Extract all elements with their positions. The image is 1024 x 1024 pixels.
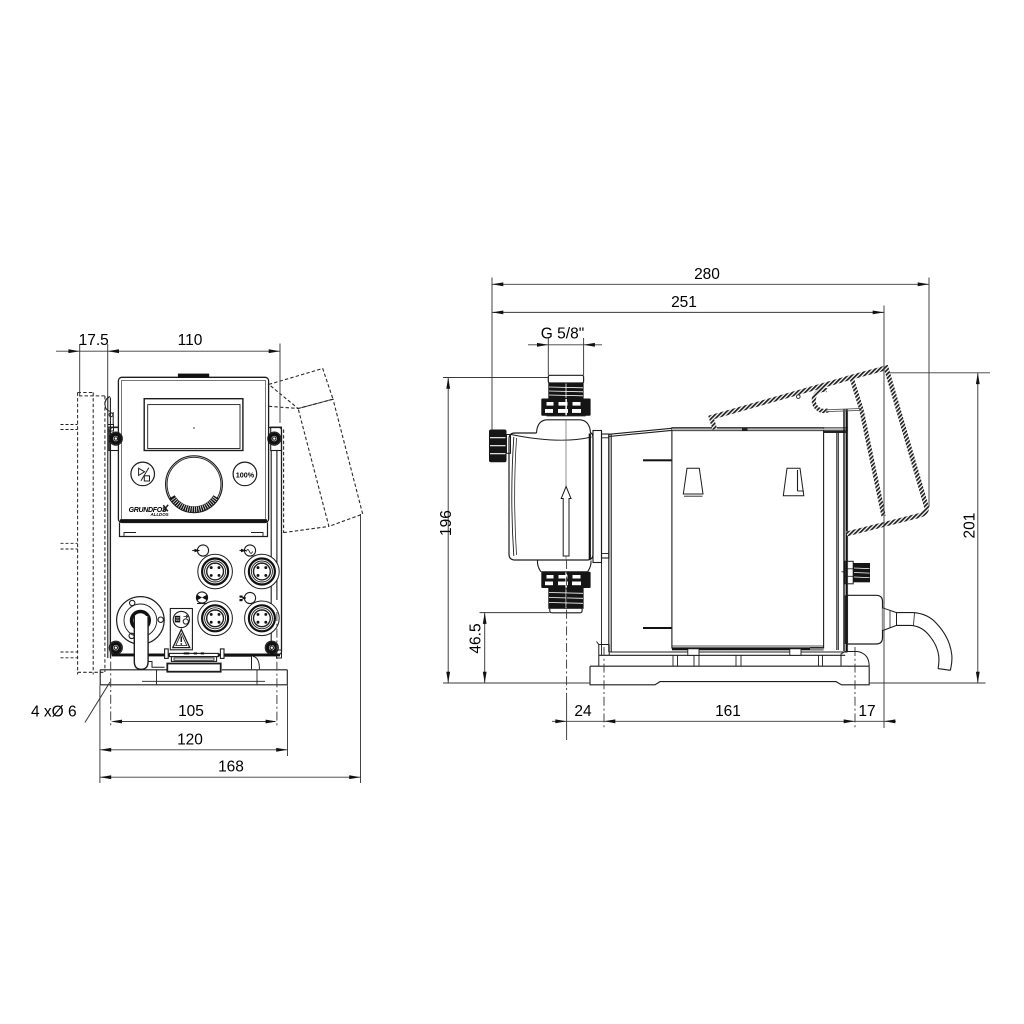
svg-text:24: 24 bbox=[574, 703, 592, 720]
svg-text:17.5: 17.5 bbox=[79, 332, 109, 349]
svg-text:105: 105 bbox=[178, 703, 204, 720]
svg-text:100%: 100% bbox=[236, 470, 255, 479]
svg-text:120: 120 bbox=[177, 732, 203, 749]
svg-text:168: 168 bbox=[218, 759, 244, 776]
svg-text:G 5/8": G 5/8" bbox=[541, 326, 584, 343]
svg-text:280: 280 bbox=[694, 266, 720, 283]
svg-text:4 xØ 6: 4 xØ 6 bbox=[31, 704, 77, 721]
svg-text:251: 251 bbox=[671, 294, 697, 311]
svg-text:46.5: 46.5 bbox=[468, 623, 485, 653]
svg-text:110: 110 bbox=[178, 332, 203, 349]
svg-text:ALLDOS: ALLDOS bbox=[150, 512, 169, 517]
svg-text:17: 17 bbox=[858, 703, 875, 720]
svg-text:201: 201 bbox=[962, 513, 979, 539]
svg-text:196: 196 bbox=[438, 510, 455, 536]
svg-text:161: 161 bbox=[715, 703, 741, 720]
